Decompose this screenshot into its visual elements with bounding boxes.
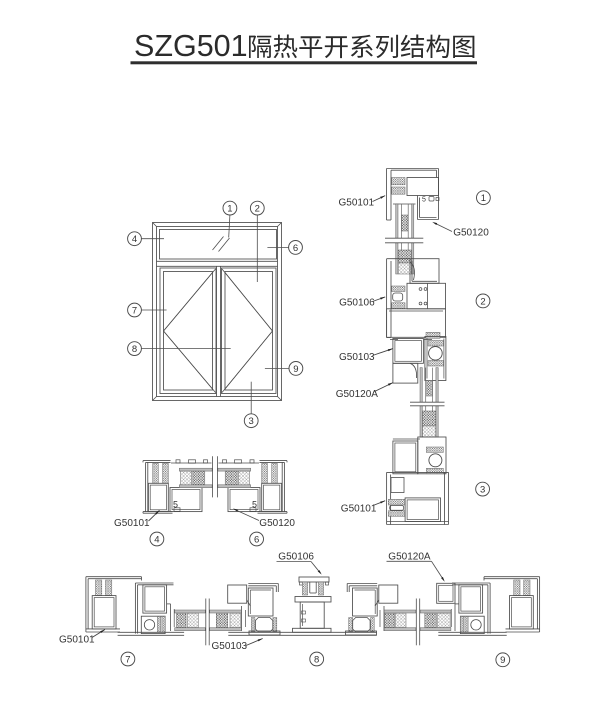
- svg-text:9: 9: [500, 655, 505, 666]
- svg-text:6: 6: [254, 534, 259, 545]
- svg-text:G50120: G50120: [453, 228, 489, 239]
- svg-text:2: 2: [255, 204, 260, 215]
- svg-text:1: 1: [481, 193, 486, 204]
- svg-text:5: 5: [422, 197, 426, 204]
- svg-text:4: 4: [154, 534, 159, 545]
- svg-text:G50101: G50101: [339, 198, 375, 209]
- svg-text:2: 2: [480, 296, 485, 307]
- svg-text:G50103: G50103: [339, 352, 375, 363]
- svg-text:G50120A: G50120A: [336, 389, 379, 400]
- svg-text:1: 1: [227, 204, 232, 215]
- svg-text:8: 8: [314, 654, 319, 665]
- svg-text:G50103: G50103: [212, 641, 248, 652]
- svg-text:G50101: G50101: [114, 518, 150, 529]
- svg-text:8: 8: [132, 344, 137, 355]
- svg-text:G50106: G50106: [339, 298, 375, 309]
- svg-text:G50120: G50120: [259, 518, 295, 529]
- svg-text:G50120A: G50120A: [388, 552, 431, 563]
- svg-text:7: 7: [125, 654, 130, 665]
- svg-text:3: 3: [480, 485, 485, 496]
- svg-text:9: 9: [293, 364, 298, 375]
- svg-text:G50101: G50101: [59, 635, 95, 646]
- svg-text:6: 6: [293, 243, 298, 254]
- svg-text:3: 3: [249, 416, 254, 427]
- svg-text:7: 7: [132, 305, 137, 316]
- svg-text:G50106: G50106: [278, 552, 314, 563]
- svg-text:G50101: G50101: [341, 504, 377, 515]
- svg-text:SZG501: SZG501: [134, 29, 248, 63]
- svg-text:4: 4: [132, 234, 137, 245]
